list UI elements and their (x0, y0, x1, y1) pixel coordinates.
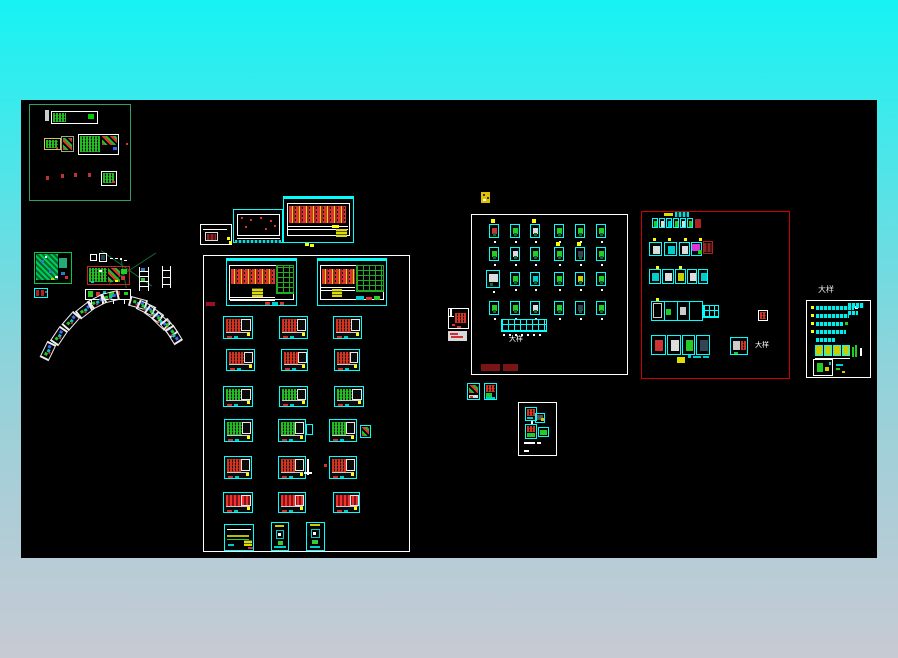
section-beam (100, 290, 120, 304)
desktop-background: 大样大样大样 (0, 0, 898, 658)
beam-part (59, 330, 63, 334)
beam-part (112, 294, 116, 298)
beam-part (104, 299, 118, 303)
beam-part (48, 345, 52, 349)
beam-part (71, 315, 75, 319)
cad-canvas[interactable]: 大样大样大样 (21, 100, 877, 558)
section-beam (165, 325, 183, 346)
section-fan[interactable] (21, 100, 877, 558)
